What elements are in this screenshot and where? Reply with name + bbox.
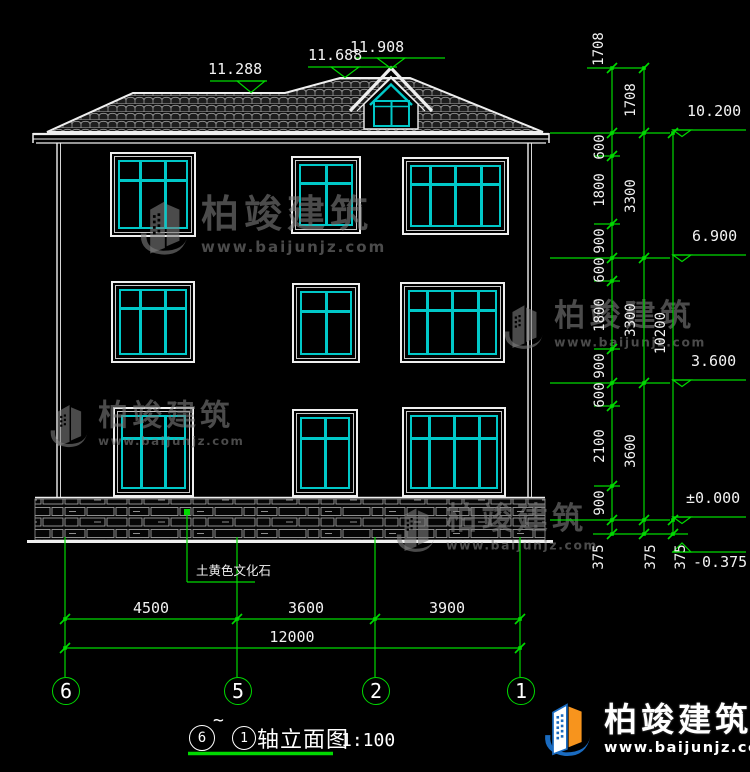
dimension-chain-lines [612,68,673,534]
elevation-marker-11688 [308,67,397,78]
dim-mid-3300b: 3300 [624,303,638,337]
dim-inner-1800a: 1800 [593,173,607,207]
dim-outer-375: 375 [674,544,688,569]
elev-label-right-4: ±0.000 [686,491,740,506]
elevation-marker-3600 [672,380,746,387]
footer-brand-text: 柏竣建筑 www.baijunjz.com [604,703,750,756]
footer-brand-name: 柏竣建筑 [604,703,750,736]
elev-label-top-1: 11.288 [208,62,262,77]
extension-lines [550,68,688,534]
footer-brand-block: 柏竣建筑 www.baijunjz.com [540,696,750,762]
elev-label-right-3: 3.600 [691,354,736,369]
dim-inner-600a: 600 [593,134,607,159]
dim-bottom-3600: 3600 [288,601,324,616]
dim-total-12000: 12000 [269,630,314,645]
footer-brand-url: www.baijunjz.com [604,740,750,756]
dim-mid-3600: 3600 [624,434,638,468]
dim-ticks [60,63,678,653]
elevation-marker-10200 [672,130,746,137]
dim-bottom-3900: 3900 [429,601,465,616]
dim-inner-600c: 600 [593,382,607,407]
dim-bottom-4500: 4500 [133,601,169,616]
axis-bubble-6: 6 [52,677,80,705]
elevation-marker-6900 [672,255,746,262]
elev-label-top-3: 11.908 [350,40,404,55]
dim-mid-1708: 1708 [624,83,638,117]
dim-inner-600b: 600 [593,257,607,282]
elev-label-right-5: -0.375 [693,555,747,570]
material-label: 土黄色文化石 [196,565,271,578]
title-axis-to-bubble: 1 [232,726,256,750]
dim-inner-1800b: 1800 [593,298,607,332]
dim-inner-900a: 900 [593,228,607,253]
title-tilde: ~ [213,710,224,731]
elevation-marker-11288 [210,81,267,93]
dim-mid-3300a: 3300 [624,179,638,213]
dim-mid-375: 375 [644,544,658,569]
cad-canvas: 柏竣建筑 www.baijunjz.com 柏竣建筑 www.baijunjz.… [0,0,750,772]
dim-inner-375: 375 [592,544,606,569]
drawing-title: 轴立面图 [257,722,349,754]
dim-inner-1708: 1708 [592,32,606,66]
axis-bubble-5: 5 [224,677,252,705]
dim-inner-900c: 900 [593,490,607,515]
dim-inner-900b: 900 [593,353,607,378]
company-logo-icon [540,696,592,762]
elevation-marker-0000 [672,517,746,524]
axis-bubble-1: 1 [507,677,535,705]
elev-label-right-1: 10.200 [687,104,741,119]
elev-label-right-2: 6.900 [692,229,737,244]
drawing-scale: 1:100 [341,730,395,751]
axis-bubble-2: 2 [362,677,390,705]
title-axis-from-bubble: 6 [189,725,215,751]
dim-outer-10200: 10200 [654,312,668,354]
dim-inner-2100: 2100 [593,429,607,463]
